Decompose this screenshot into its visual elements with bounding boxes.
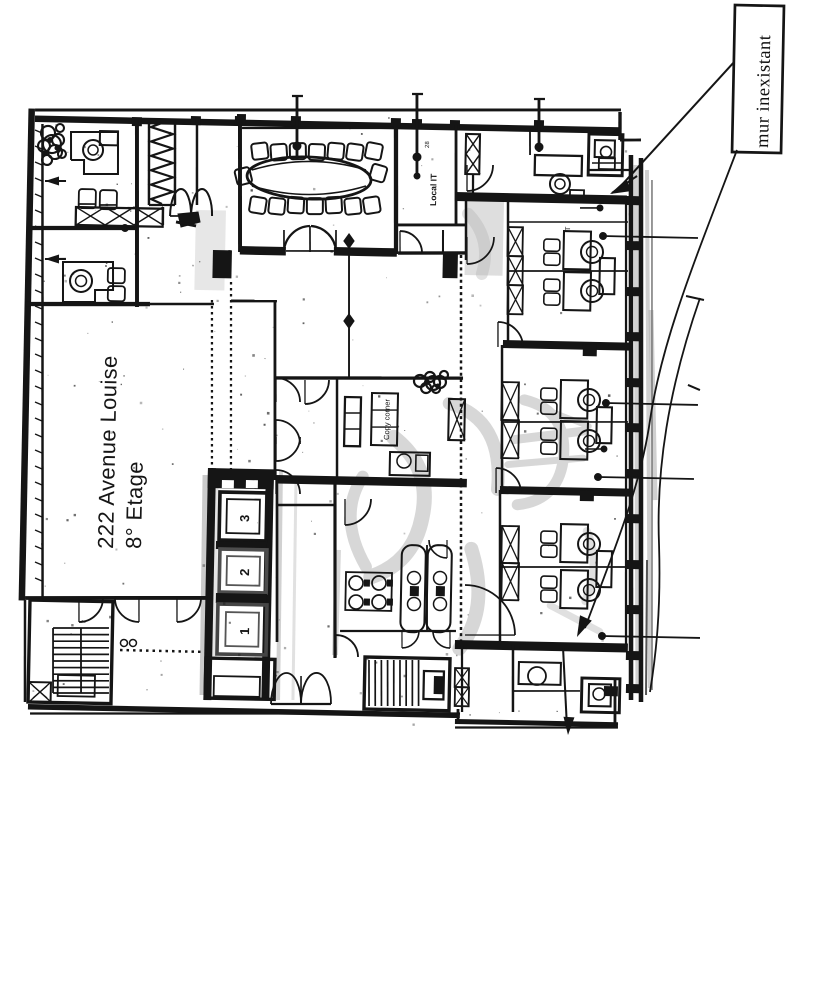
svg-text:3: 3 (237, 515, 252, 523)
svg-text:222 Avenue Louise: 222 Avenue Louise (93, 355, 122, 549)
svg-text:1: 1 (237, 628, 252, 636)
svg-text:8° Etage: 8° Etage (121, 461, 148, 549)
svg-text:28: 28 (425, 141, 431, 148)
svg-text:mur inexistant: mur inexistant (753, 34, 775, 148)
svg-text:Copy corner: Copy corner (382, 398, 392, 440)
svg-text:Local IT: Local IT (428, 173, 439, 206)
svg-text:2: 2 (237, 569, 252, 577)
